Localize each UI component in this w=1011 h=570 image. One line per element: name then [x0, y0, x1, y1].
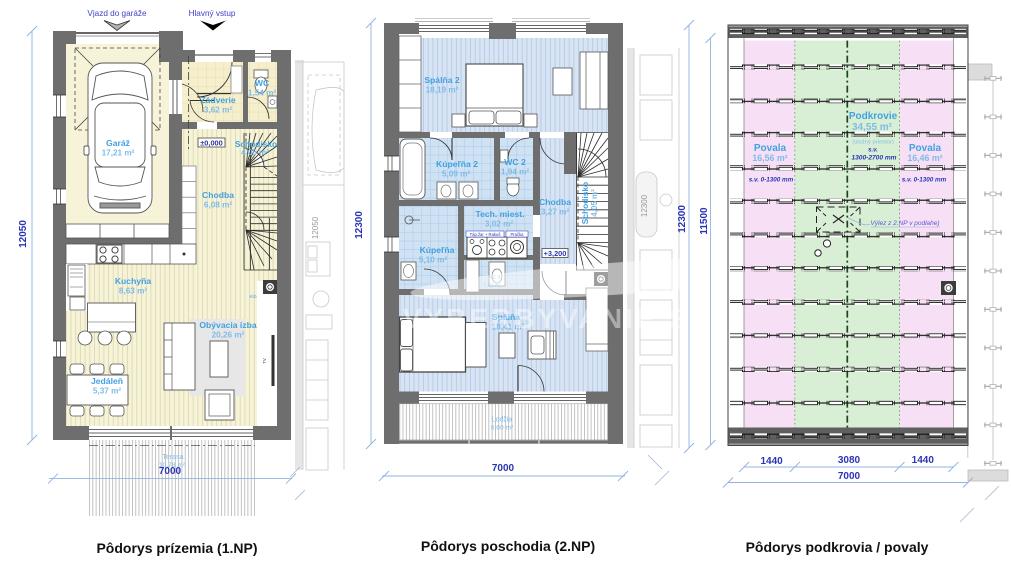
- svg-text:4,05 m²: 4,05 m²: [590, 189, 599, 217]
- svg-text:TV: TV: [262, 358, 267, 364]
- svg-text:12300: 12300: [354, 211, 365, 239]
- svg-text:Hlavný vstup: Hlavný vstup: [189, 9, 236, 18]
- svg-text:Obývacia izba: Obývacia izba: [199, 320, 257, 330]
- svg-text:12300: 12300: [640, 194, 649, 217]
- svg-text:s.v.: s.v.: [868, 148, 878, 154]
- svg-text:Jedáleň: Jedáleň: [91, 376, 123, 386]
- svg-text:±0,000: ±0,000: [200, 138, 223, 147]
- svg-text:4,05 m²: 4,05 m²: [241, 148, 269, 157]
- svg-text:5,09 m²: 5,09 m²: [442, 170, 470, 179]
- svg-text:Terasa: Terasa: [162, 454, 183, 461]
- svg-text:Pôdorys podkrovia / povaly: Pôdorys podkrovia / povaly: [746, 539, 929, 555]
- svg-text:17,21 m²: 17,21 m²: [102, 149, 135, 158]
- svg-text:3,62 m²: 3,62 m²: [204, 106, 232, 115]
- svg-text:12300: 12300: [677, 205, 688, 233]
- svg-text:5,10 m²: 5,10 m²: [419, 256, 447, 265]
- svg-text:Schodisko: Schodisko: [580, 182, 590, 224]
- svg-text:Podkrovie: Podkrovie: [849, 111, 898, 122]
- svg-text:Pôdorys prízemia (1.NP): Pôdorys prízemia (1.NP): [96, 540, 257, 556]
- svg-text:+3,200: +3,200: [544, 249, 567, 258]
- svg-text:WC 2: WC 2: [504, 157, 526, 167]
- svg-text:16,46 m²: 16,46 m²: [907, 153, 942, 163]
- svg-text:18,19 m²: 18,19 m²: [426, 86, 459, 95]
- svg-text:Garáž: Garáž: [106, 138, 130, 148]
- svg-text:WC: WC: [255, 78, 269, 88]
- svg-text:Tech. miest.: Tech. miest.: [475, 209, 524, 219]
- svg-text:Spálňa 2: Spálňa 2: [424, 75, 460, 85]
- svg-text:16,56 m²: 16,56 m²: [752, 153, 787, 163]
- svg-text:7000: 7000: [492, 463, 515, 474]
- svg-text:3,02 m²: 3,02 m²: [485, 220, 513, 229]
- svg-text:Chodba: Chodba: [539, 197, 571, 207]
- svg-text:20,26 m²: 20,26 m²: [212, 331, 245, 340]
- svg-text:5,37 m²: 5,37 m²: [93, 387, 121, 396]
- svg-text:Vjazd do garáže: Vjazd do garáže: [87, 9, 147, 18]
- svg-text:Pôdorys poschodia (2.NP): Pôdorys poschodia (2.NP): [421, 538, 595, 554]
- svg-text:Pračka: Pračka: [510, 232, 524, 237]
- svg-text:s.v. 0-1300 mm: s.v. 0-1300 mm: [902, 177, 947, 184]
- svg-text:34,55 m²: 34,55 m²: [852, 122, 893, 133]
- svg-text:1300-2700 mm: 1300-2700 mm: [851, 155, 896, 162]
- svg-text:1,54 m²: 1,54 m²: [248, 89, 276, 98]
- svg-text:6,60 m²: 6,60 m²: [491, 425, 514, 432]
- svg-text:1440: 1440: [760, 456, 783, 467]
- svg-text:7000: 7000: [159, 466, 182, 477]
- svg-text:Krb: Krb: [249, 294, 257, 299]
- svg-text:Kuchyňa: Kuchyňa: [115, 276, 152, 286]
- svg-text:12050: 12050: [311, 216, 320, 239]
- svg-text:1,94 m²: 1,94 m²: [501, 168, 529, 177]
- svg-text:6,08 m²: 6,08 m²: [204, 201, 232, 210]
- svg-text:11500: 11500: [699, 207, 710, 235]
- svg-text:3080: 3080: [838, 455, 861, 466]
- svg-text:Zádverie: Zádverie: [200, 95, 236, 105]
- svg-text:Lodžia: Lodžia: [492, 417, 513, 424]
- svg-text:s.v. 0-1300 mm: s.v. 0-1300 mm: [749, 177, 794, 184]
- svg-text:8,63 m²: 8,63 m²: [119, 287, 147, 296]
- svg-text:Kúpeľňa 2: Kúpeľňa 2: [436, 159, 478, 169]
- svg-text:Táp.žar + Rakuš: Táp.žar + Rakuš: [470, 232, 501, 237]
- svg-text:(úložný priestor): (úložný priestor): [852, 140, 894, 146]
- svg-text:Kúpeľňa: Kúpeľňa: [420, 245, 455, 255]
- svg-text:12050: 12050: [18, 220, 29, 248]
- svg-text:Výlez z 2.NP v podlahe): Výlez z 2.NP v podlahe): [870, 220, 939, 227]
- svg-text:Chodba: Chodba: [202, 190, 234, 200]
- svg-text:3,27 m²: 3,27 m²: [541, 208, 569, 217]
- svg-text:VYBERBYVANIE.SK: VYBERBYVANIE.SK: [403, 303, 714, 334]
- svg-text:1440: 1440: [912, 455, 935, 466]
- svg-text:7000: 7000: [838, 471, 861, 482]
